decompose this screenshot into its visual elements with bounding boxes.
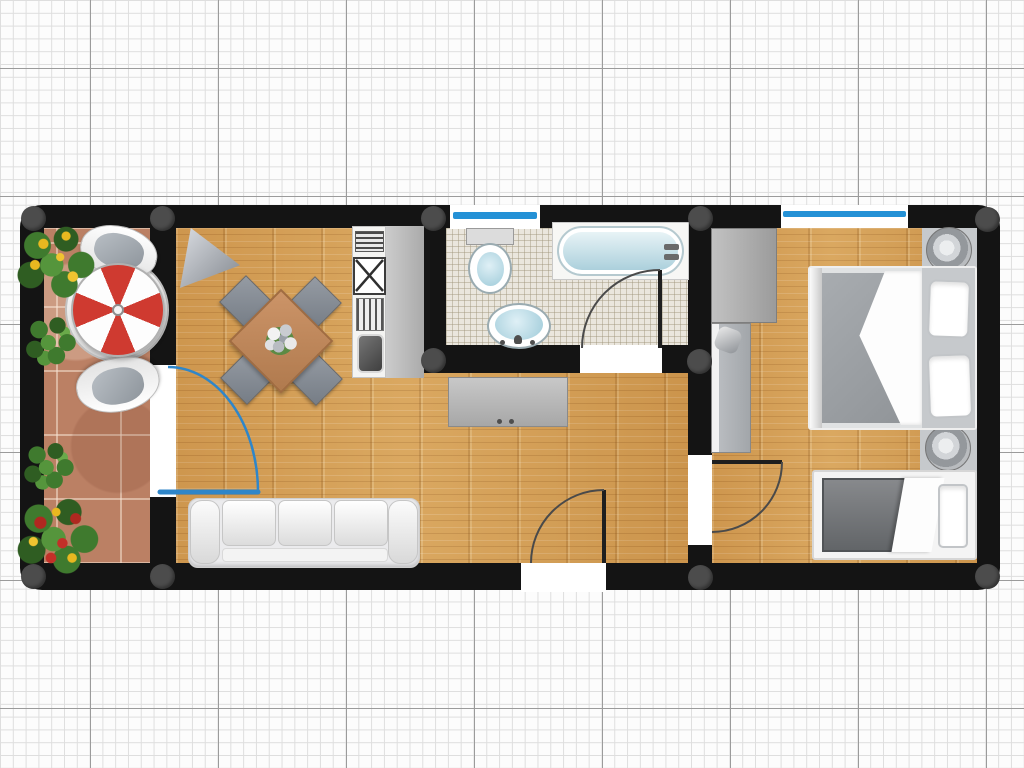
kitchen-vent[interactable]: [355, 231, 384, 252]
sofa-cushion-2: [278, 500, 332, 546]
wall-handle-9[interactable]: [150, 564, 175, 589]
sideboard[interactable]: [448, 377, 568, 427]
stove[interactable]: [353, 257, 386, 295]
wall-bathroom-south[interactable]: [422, 345, 712, 373]
plan-canvas: [0, 0, 1024, 768]
sofa-arm-right: [388, 500, 418, 564]
opening-entrance: [521, 563, 606, 592]
wall-handle-2[interactable]: [150, 206, 175, 231]
sofa-front-rail: [222, 548, 388, 562]
kitchen-counter[interactable]: [386, 226, 424, 378]
sofa-cushion-1: [222, 500, 276, 546]
bathtub-faucet: [664, 244, 679, 250]
pillow-2: [927, 353, 973, 418]
opening-bedroom-door: [688, 455, 712, 545]
wall-handle-6[interactable]: [421, 348, 446, 373]
bathroom-window-glass: [453, 212, 537, 219]
bathtub[interactable]: [557, 226, 684, 276]
sofa-cushion-3: [334, 500, 388, 546]
bedroom-window-glass: [783, 211, 906, 217]
double-bed-footboard: [810, 268, 822, 428]
washbasin-faucet: [514, 335, 522, 344]
bathtub-drain: [664, 254, 679, 260]
wall-handle-7[interactable]: [687, 349, 712, 374]
wall-handle-1[interactable]: [21, 206, 46, 231]
sofa-arm-left: [190, 500, 220, 564]
opening-bathroom-door: [580, 345, 662, 373]
washbasin-knob-2: [530, 340, 535, 345]
flower-centerpiece: [257, 317, 305, 365]
plant-yellow-top[interactable]: [14, 222, 98, 300]
kitchen-sink[interactable]: [357, 334, 384, 373]
washbasin-knob-1: [500, 340, 505, 345]
wardrobe[interactable]: [711, 228, 777, 323]
bedside-lamp-2[interactable]: [925, 425, 971, 471]
wall-handle-5[interactable]: [975, 207, 1000, 232]
sideboard-knob-2: [509, 419, 514, 424]
sideboard-knob-1: [497, 419, 502, 424]
plant-shrub-1[interactable]: [24, 314, 78, 366]
dish-rack[interactable]: [356, 298, 384, 331]
wall-handle-8[interactable]: [21, 564, 46, 589]
wall-handle-4[interactable]: [688, 206, 713, 231]
single-bed-pillow: [938, 484, 968, 548]
wall-handle-3[interactable]: [421, 206, 446, 231]
plant-shrub-2[interactable]: [22, 440, 76, 490]
wall-handle-11[interactable]: [975, 564, 1000, 589]
toilet-bowl-water: [477, 252, 504, 286]
pillow-1: [927, 279, 971, 338]
parasol-hub: [112, 304, 124, 316]
plant-red-bottom[interactable]: [14, 494, 102, 576]
wall-handle-10[interactable]: [688, 565, 713, 590]
